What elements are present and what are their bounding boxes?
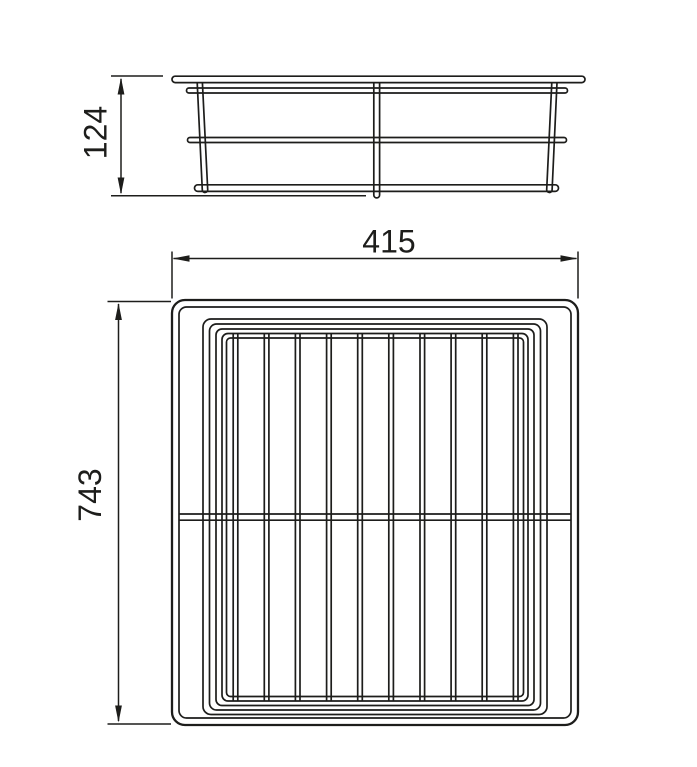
dimension-plan-depth: 743	[72, 302, 171, 725]
technical-drawing-page: 124 415 743	[0, 0, 697, 767]
rim-line-2	[210, 324, 541, 710]
dim-side-height-label: 124	[78, 106, 114, 159]
side-post-middle	[374, 83, 380, 198]
side-view: 124	[78, 76, 585, 198]
wire	[264, 334, 269, 702]
side-wire-top	[187, 88, 568, 93]
arrowhead-down-icon	[115, 706, 122, 723]
dimension-plan-width: 415	[172, 224, 578, 299]
wire	[420, 334, 425, 702]
wire	[513, 334, 518, 702]
wire	[389, 334, 394, 702]
dim-plan-width-label: 415	[362, 224, 415, 260]
wire	[482, 334, 487, 702]
arrowhead-left-icon	[173, 255, 190, 262]
rim-tube-inner	[227, 338, 524, 697]
wire	[451, 334, 456, 702]
side-wire-bottom	[195, 185, 559, 192]
arrowhead-down-icon	[118, 178, 125, 195]
rim-line-1	[203, 319, 547, 715]
dimension-side-height: 124	[78, 76, 366, 196]
wire	[295, 334, 300, 702]
side-wire-middle	[188, 138, 567, 143]
arrowhead-right-icon	[561, 255, 578, 262]
arrowhead-up-icon	[118, 78, 125, 95]
wire	[358, 334, 363, 702]
plan-view: 415 743	[72, 224, 578, 726]
wire	[327, 334, 332, 702]
dim-plan-depth-label: 743	[72, 468, 108, 521]
arrowhead-up-icon	[115, 303, 122, 320]
wire-basket-drawing: 124 415 743	[0, 0, 697, 767]
basket-wires	[233, 334, 518, 702]
top-rail	[172, 76, 585, 82]
wire	[233, 334, 238, 702]
